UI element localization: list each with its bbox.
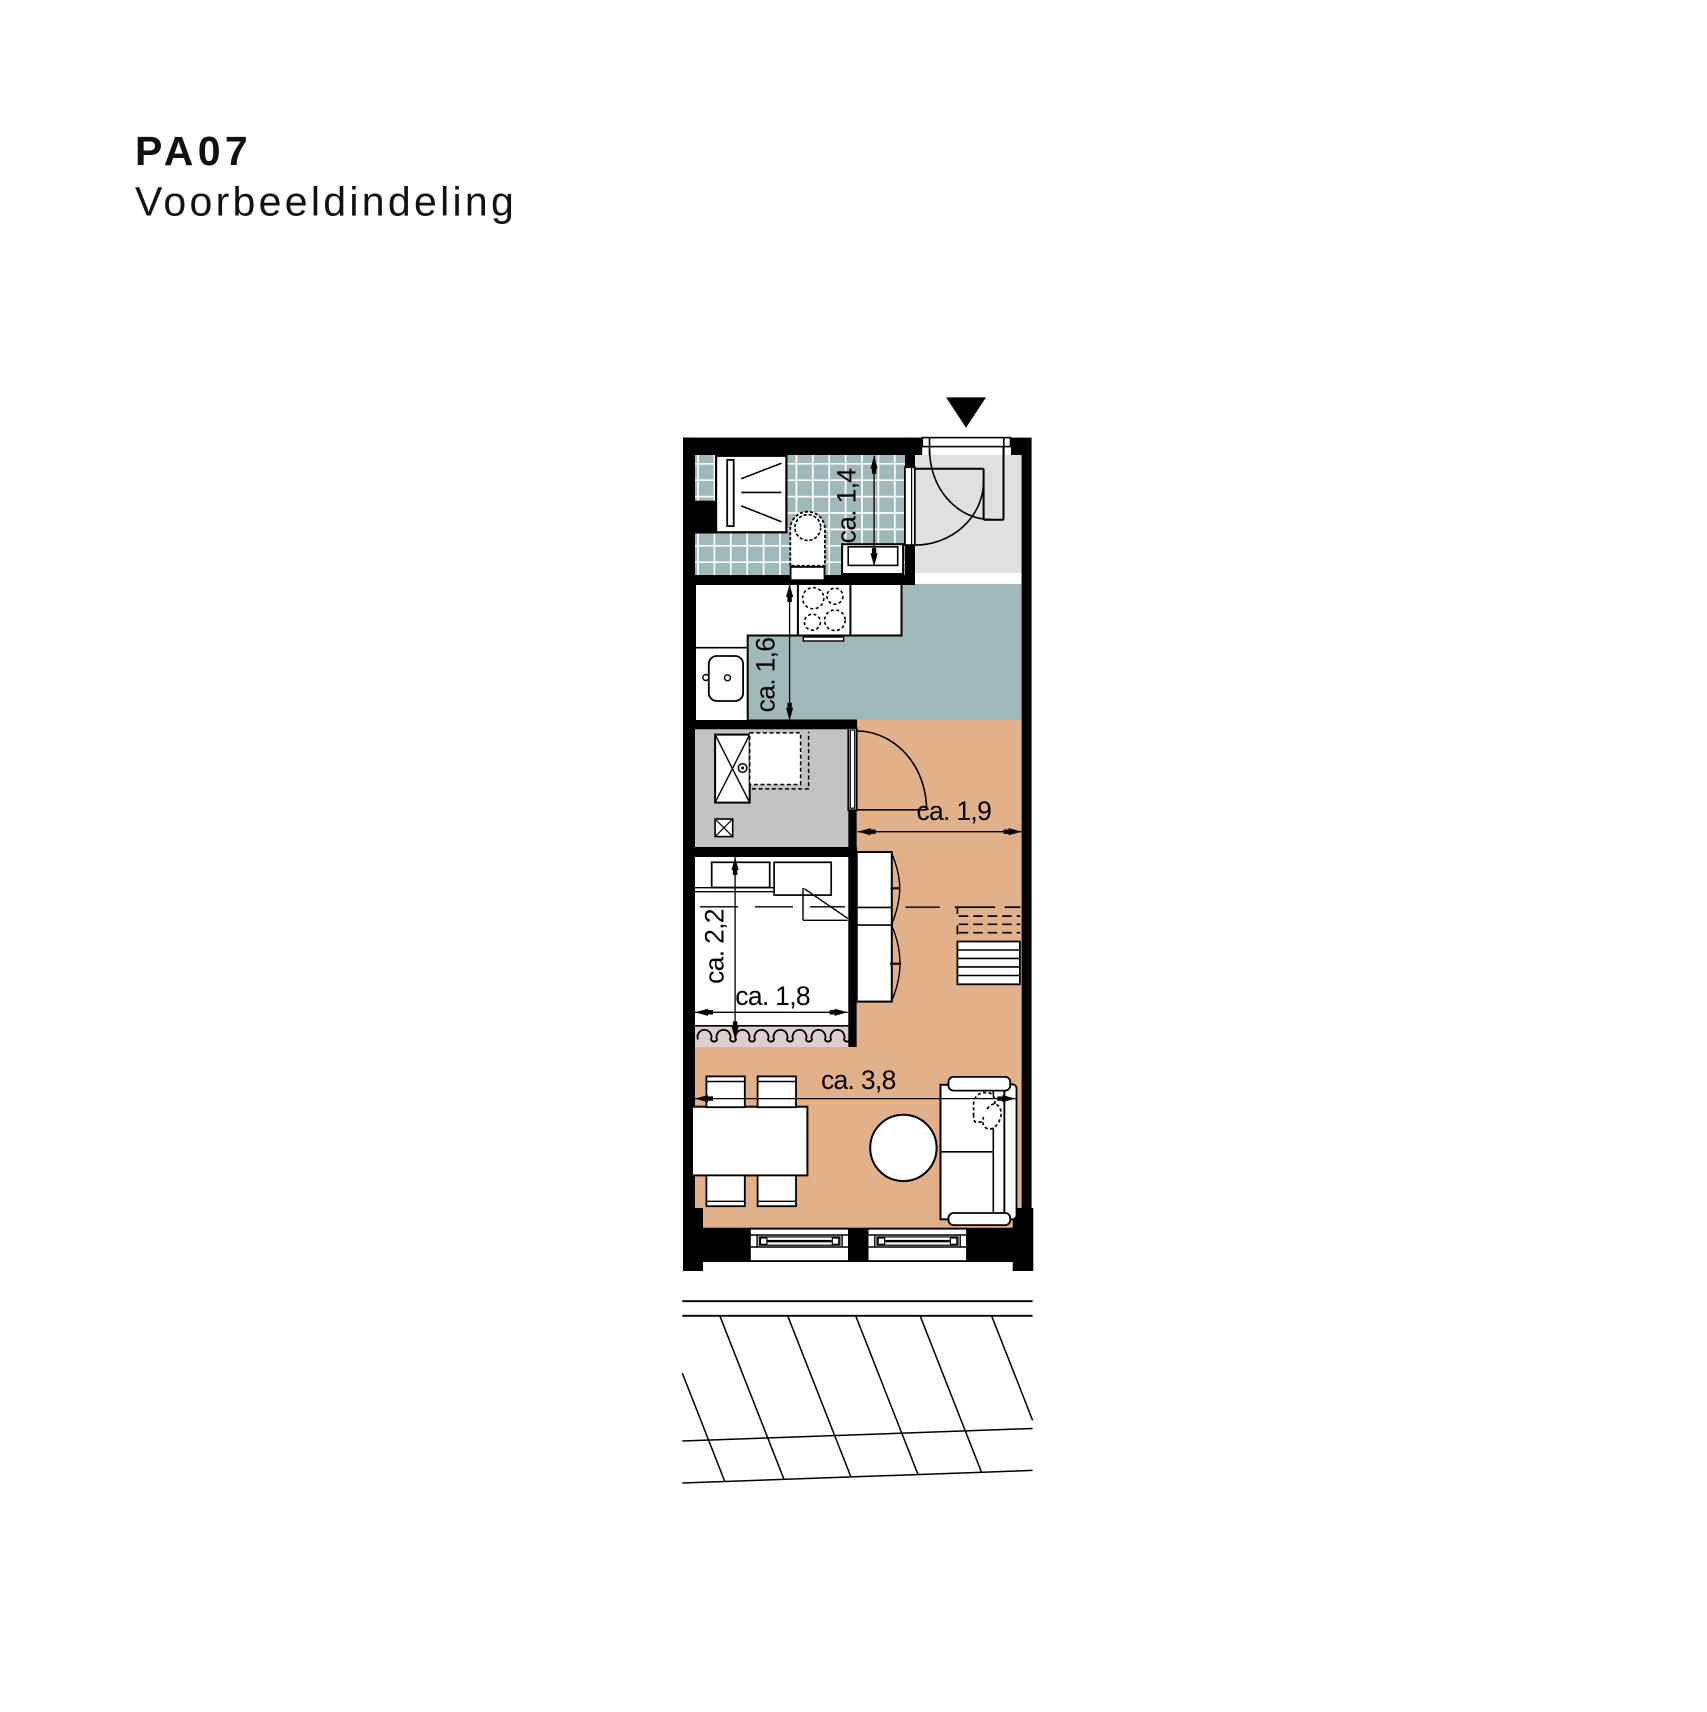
svg-text:Voorbeeldindeling: Voorbeeldindeling bbox=[135, 179, 517, 225]
svg-text:ca. 2,2: ca. 2,2 bbox=[699, 909, 729, 984]
svg-text:ca. 1,8: ca. 1,8 bbox=[735, 981, 810, 1011]
svg-text:ca. 1,4: ca. 1,4 bbox=[831, 469, 861, 544]
svg-text:ca. 1,6: ca. 1,6 bbox=[751, 638, 781, 713]
svg-text:PA07: PA07 bbox=[135, 128, 252, 174]
svg-text:ca. 1,9: ca. 1,9 bbox=[916, 796, 991, 826]
svg-text:ca. 3,8: ca. 3,8 bbox=[821, 1065, 896, 1095]
